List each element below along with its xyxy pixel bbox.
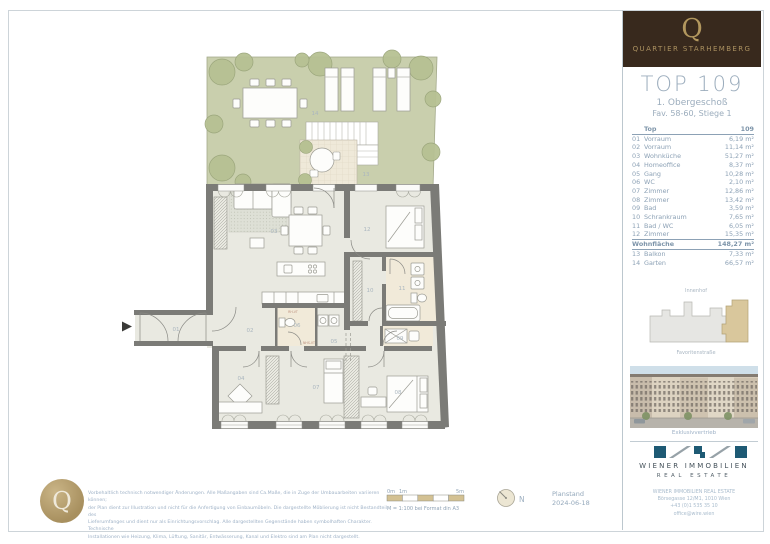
table-header-label: Top: [644, 125, 741, 134]
gold-q-badge-icon: Q: [40, 479, 84, 523]
room-label-01: 01: [173, 327, 180, 333]
table-row: 14Garten66,57 m²: [632, 259, 754, 268]
disclaimer-line: Lieferumfanges und dient nur als Einrich…: [88, 519, 390, 534]
keyplan-courtyard-label: Innenhof: [636, 288, 756, 294]
kitchen-counter: [262, 292, 345, 304]
scale-tick-1m: 1m: [399, 489, 407, 495]
room-label-14: 14: [312, 111, 319, 117]
room-table: Top109 01Vorraum6,19 m² 02Vorraum11,14 m…: [632, 125, 754, 267]
brand-q-logo-icon: Q: [623, 14, 761, 44]
disclaimer-line: Vorbehaltlich technisch notwendiger Ände…: [88, 490, 390, 505]
table-header-value: 109: [741, 125, 754, 134]
north-arrow-icon: N: [494, 487, 530, 509]
balcony-area: [299, 140, 358, 188]
disclaimer-line: Installationen wie Heizung, Klima, Lüftu…: [88, 534, 390, 541]
balcony-table: [310, 148, 334, 172]
room-label-04: 04: [238, 376, 245, 382]
balcony-plant: [300, 141, 313, 154]
scale-tick-5m: 5m: [456, 489, 464, 495]
room-label-12: 12: [364, 227, 371, 233]
keyplan-street-label: Favoritenstraße: [636, 350, 756, 356]
plan-date-block: Planstand 2024-06-18: [552, 490, 590, 507]
entrance-arrow-icon: [122, 322, 132, 332]
building-photo: [630, 366, 758, 428]
disclaimer-text: Vorbehaltlich technisch notwendiger Ände…: [88, 490, 390, 541]
room-label-03: 03: [271, 229, 278, 235]
bed-room08: [387, 376, 428, 412]
room-label-09: 09: [397, 336, 404, 342]
table-row: 13Balkon7,33 m²: [632, 250, 754, 259]
agency-subname: REAL ESTATE: [626, 473, 762, 479]
scale-caption: M = 1:100 bei Format din A3: [387, 506, 459, 512]
wardrobe-unit: [266, 356, 279, 404]
scale-tick-0m: 0m: [387, 489, 395, 495]
unit-address: Fav. 58-60, Stiege 1: [623, 109, 761, 118]
scale-bar: 0m 1m 5m M = 1:100 bei Format din A3: [386, 486, 504, 514]
floorplan-page: 01 02 03 04 05 06 07 08 09 10 11 12 13 1…: [0, 0, 770, 544]
contact-line: +43 (0)1 535 35 10: [626, 503, 762, 510]
keyplan-drawing: [636, 296, 756, 348]
north-label: N: [519, 495, 525, 504]
table-row: 02Vorraum11,14 m²: [632, 143, 754, 152]
table-row: 08Zimmer13,42 m²: [632, 196, 754, 205]
annotation-nhs-vt: NHS-VT: [303, 341, 315, 345]
table-row: 05Gang10,28 m²: [632, 170, 754, 179]
panel-divider-under-caption: [630, 441, 758, 442]
bed-room07: [324, 359, 343, 403]
table-row: 12Zimmer15,35 m²: [632, 230, 754, 239]
table-row: 09Bad3,59 m²: [632, 204, 754, 213]
contact-line: Börsegasse 12/M1, 1010 Wien: [626, 496, 762, 503]
brand-name: QUARTIER STARHEMBERG: [623, 45, 761, 53]
bed-room12: [386, 206, 424, 248]
annotation-rh-vt: RH-VT: [288, 310, 298, 314]
kitchen-island: [277, 262, 325, 276]
wardrobe-unit: [214, 197, 227, 249]
plan-date-value: 2024-06-18: [552, 499, 590, 508]
room-label-02: 02: [247, 328, 254, 334]
table-row: 06WC2,10 m²: [632, 178, 754, 187]
room-label-11: 11: [399, 286, 406, 292]
unit-title-block: TOP 109 1. Obergeschoß Fav. 58-60, Stieg…: [623, 72, 761, 118]
room-label-07: 07: [313, 385, 320, 391]
table-row: 03Wohnküche51,27 m²: [632, 152, 754, 161]
bench-room04: [216, 402, 262, 413]
wardrobe-unit: [344, 356, 359, 418]
room-label-08: 08: [395, 390, 402, 396]
room-label-06: 06: [294, 323, 301, 329]
wardrobe-unit: [353, 261, 362, 321]
agency-name: WIENER IMMOBILIEN: [626, 462, 762, 470]
table-header-row: Top109: [632, 125, 754, 135]
keyplan-highlighted-unit: [722, 300, 748, 342]
room-label-05: 05: [331, 339, 338, 345]
keyplan-building: [650, 302, 726, 342]
table-row: 10Schrankraum7,65 m²: [632, 213, 754, 222]
table-total-row: Wohnfläche148,27 m²: [632, 239, 754, 250]
room-label-13: 13: [363, 172, 370, 178]
plan-date-label: Planstand: [552, 490, 590, 499]
agency-logo-icon: [638, 445, 754, 460]
agency-contact-block: WIENER IMMOBILIEN REAL ESTATE Börsegasse…: [626, 489, 762, 518]
unit-floor: 1. Obergeschoß: [623, 98, 761, 108]
disclaimer-line: der Plan dient zur Illustration und nich…: [88, 505, 390, 520]
table-row: 01Vorraum6,19 m²: [632, 135, 754, 144]
photo-caption: Exklusivvertrieb: [630, 430, 758, 436]
floorplan-drawing: 01 02 03 04 05 06 07 08 09 10 11 12 13 1…: [88, 48, 460, 440]
table-row: 07Zimmer12,86 m²: [632, 187, 754, 196]
table-row: 11Bad / WC6,05 m²: [632, 222, 754, 231]
brand-header: Q QUARTIER STARHEMBERG: [623, 11, 761, 67]
unit-title: TOP 109: [623, 72, 761, 96]
contact-line: office@wire.wien: [626, 511, 762, 518]
table-row: 04Homeoffice8,37 m²: [632, 161, 754, 170]
contact-line: WIENER IMMOBILIEN REAL ESTATE: [626, 489, 762, 496]
room-label-10: 10: [367, 288, 374, 294]
